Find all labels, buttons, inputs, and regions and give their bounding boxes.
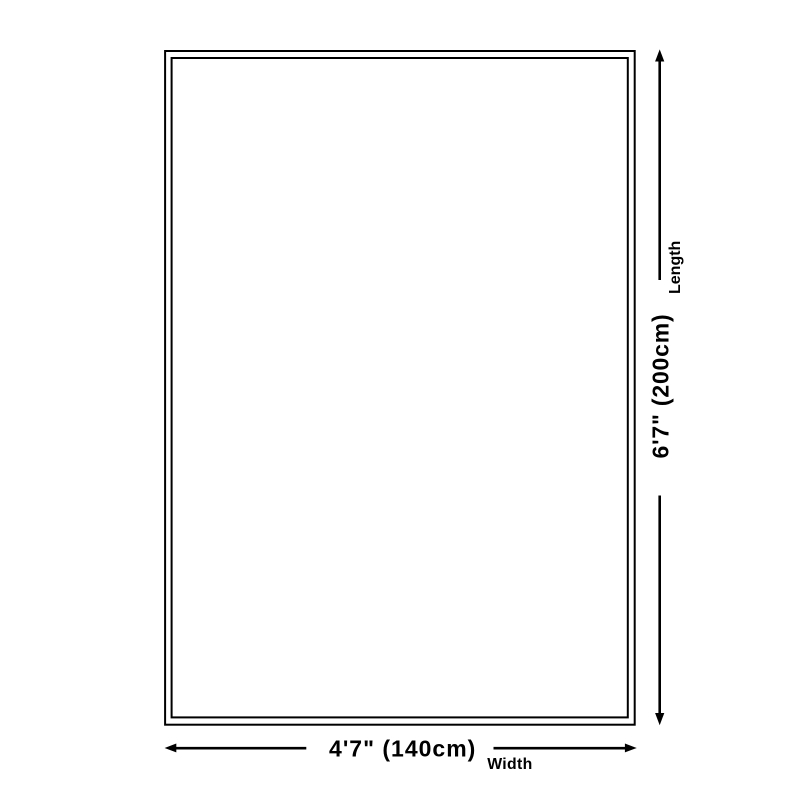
svg-text:6'7" (200cm): 6'7" (200cm) <box>647 314 673 459</box>
svg-text:Width: Width <box>487 756 532 773</box>
svg-text:Length: Length <box>667 241 684 294</box>
svg-text:4'7" (140cm): 4'7" (140cm) <box>329 736 476 762</box>
